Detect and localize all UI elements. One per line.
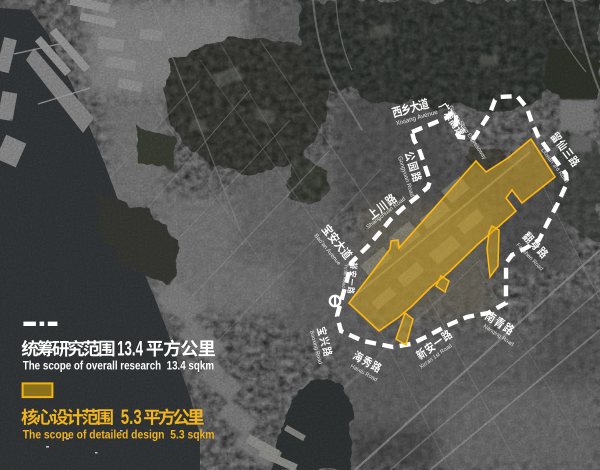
svg-text:The scope of detailed design: The scope of detailed design 5.3 sqkm [23,429,215,442]
svg-text:The scope of overall research: The scope of overall research 13.4 sqkm [23,360,214,373]
svg-text:13.4: 13.4 [117,336,143,360]
svg-text:5.3: 5.3 [121,405,142,429]
